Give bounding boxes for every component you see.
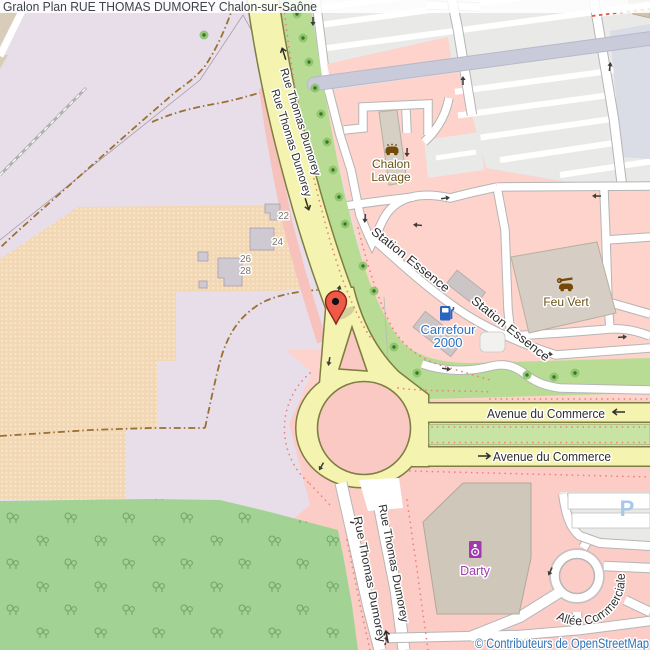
svg-text:2000: 2000 [434, 335, 463, 350]
svg-text:Feu Vert: Feu Vert [543, 295, 589, 309]
svg-text:Avenue du Commerce: Avenue du Commerce [487, 407, 605, 421]
svg-text:24: 24 [272, 237, 284, 248]
svg-text:P: P [620, 496, 635, 521]
svg-text:Darty: Darty [460, 564, 491, 578]
svg-text:26: 26 [240, 254, 252, 265]
svg-text:28: 28 [240, 266, 252, 277]
svg-text:Chalon: Chalon [372, 157, 410, 171]
svg-text:22: 22 [278, 211, 290, 222]
svg-text:Gralon Plan RUE THOMAS DUMOREY: Gralon Plan RUE THOMAS DUMOREY Chalon-su… [3, 0, 317, 14]
svg-text:Lavage: Lavage [371, 170, 411, 184]
svg-text:© Contributeurs de OpenStreetM: © Contributeurs de OpenStreetMap [475, 636, 649, 650]
svg-text:Avenue du Commerce: Avenue du Commerce [493, 450, 611, 464]
